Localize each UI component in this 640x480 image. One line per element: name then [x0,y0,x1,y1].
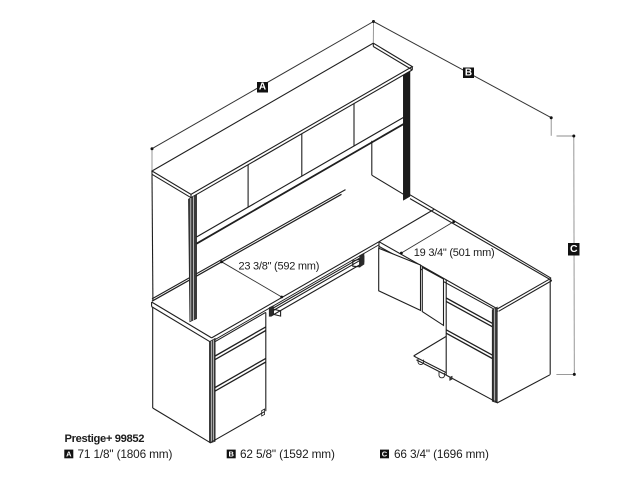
svg-text:62 5/8" (1592 mm): 62 5/8" (1592 mm) [240,447,335,461]
svg-text:B: B [465,67,472,78]
svg-text:A: A [66,450,72,459]
svg-text:66 3/4" (1696 mm): 66 3/4" (1696 mm) [394,447,489,461]
svg-text:C: C [382,450,388,459]
svg-text:A: A [259,82,266,93]
svg-text:B: B [228,450,234,459]
svg-text:Prestige+ 99852: Prestige+ 99852 [65,433,145,445]
svg-text:71 1/8" (1806 mm): 71 1/8" (1806 mm) [78,447,173,461]
svg-text:23 3/8" (592 mm): 23 3/8" (592 mm) [239,260,320,272]
svg-text:19 3/4" (501 mm): 19 3/4" (501 mm) [414,247,495,259]
svg-text:C: C [570,243,578,255]
